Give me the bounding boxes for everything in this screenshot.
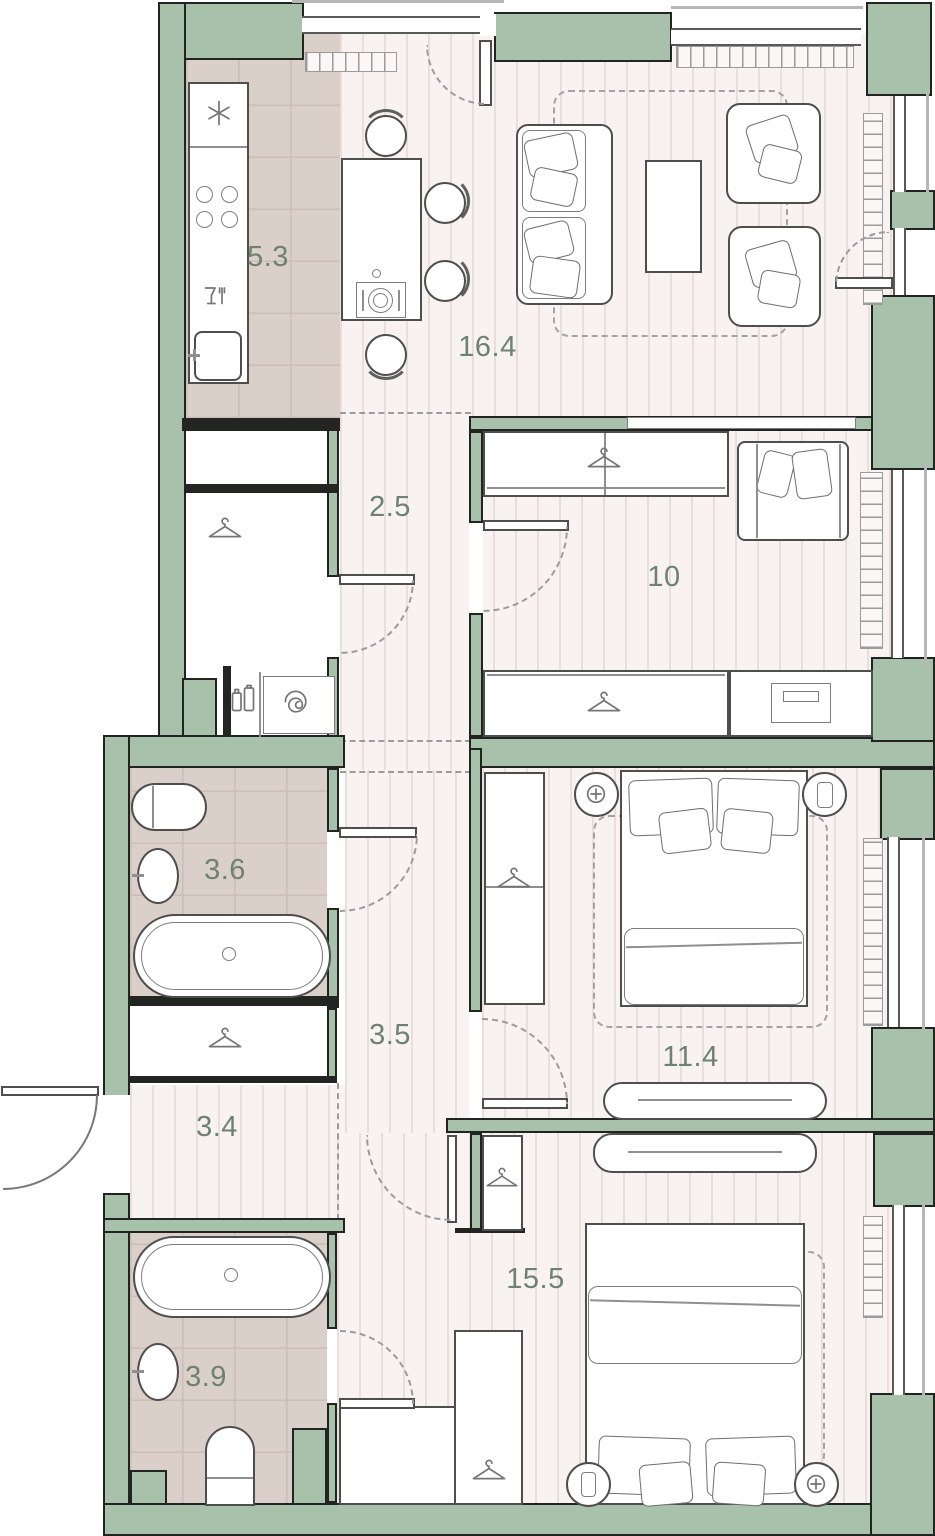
door-opening <box>327 832 339 908</box>
drawer-icon <box>771 683 831 723</box>
hanger-icon <box>470 1460 508 1482</box>
balcony-edge-line <box>292 0 504 3</box>
phone-icon <box>817 782 833 808</box>
fridge-divider <box>190 146 247 148</box>
partition-wall <box>186 484 339 493</box>
room-label-corridor: 3.5 <box>350 1018 430 1052</box>
radiator <box>305 52 397 72</box>
pillow <box>720 808 774 855</box>
stove-burner-icon <box>196 211 213 228</box>
pillow <box>791 448 833 501</box>
wall <box>494 12 672 62</box>
washer-drum-icon <box>281 687 317 723</box>
wall <box>469 431 483 523</box>
detergent-icon <box>230 682 256 714</box>
bathtub-drain <box>224 1268 238 1282</box>
coffee-table <box>645 160 702 273</box>
bench <box>593 1133 817 1173</box>
duct-shaft <box>182 678 217 737</box>
wall <box>871 657 935 742</box>
knife-icon <box>398 290 400 311</box>
window <box>671 28 861 46</box>
freezer-asterisk-icon <box>204 98 234 128</box>
wall <box>158 2 186 768</box>
entry-hall-floor <box>130 1085 345 1220</box>
lamp-plus-icon <box>585 783 607 805</box>
zone-divider <box>340 771 471 773</box>
balcony-door-opening <box>893 228 906 295</box>
room-label-bedroom-master: 15.5 <box>493 1262 578 1296</box>
wall <box>327 1008 337 1078</box>
kitchen-sink <box>194 331 242 381</box>
wall <box>469 748 482 1012</box>
balcony-edge-line <box>926 94 929 192</box>
zone-divider <box>340 740 471 742</box>
radiator <box>863 1216 883 1318</box>
wall <box>103 735 345 768</box>
bathtub-drain <box>222 947 236 961</box>
wall <box>873 1133 935 1207</box>
stove-burner-icon <box>221 186 238 203</box>
wardrobe-front-line <box>487 487 725 489</box>
balcony-edge-line <box>922 1201 925 1397</box>
balcony-door-opening <box>892 1317 905 1395</box>
blanket <box>624 928 804 1005</box>
cup-icon <box>372 269 381 278</box>
closet <box>339 1406 456 1505</box>
window <box>893 96 906 192</box>
door-opening <box>327 577 339 657</box>
wall <box>446 1118 935 1133</box>
bed-frame-line <box>756 444 758 538</box>
door-opening <box>469 523 483 613</box>
drawer-slot <box>783 691 819 702</box>
wall <box>103 735 130 1097</box>
bench-line <box>628 1151 782 1153</box>
dishwasher-icon <box>200 285 230 309</box>
stove-burner-icon <box>196 186 213 203</box>
dining-chair <box>424 182 466 224</box>
wall <box>871 1027 935 1120</box>
room-label-hallway: 2.5 <box>350 490 430 524</box>
dining-chair <box>365 334 407 376</box>
stove-burner-icon <box>221 211 238 228</box>
wall <box>890 190 935 230</box>
toilet <box>131 783 207 831</box>
radiator <box>860 472 883 649</box>
balcony-edge-line <box>671 6 863 9</box>
dining-chair <box>365 115 407 157</box>
wardrobe-front-line <box>487 674 725 676</box>
radiator <box>676 46 854 68</box>
wall <box>327 1403 337 1503</box>
pillow <box>658 807 713 855</box>
partition-wall <box>130 1076 337 1083</box>
entrance-door-arc <box>3 1095 98 1190</box>
wall <box>470 1133 482 1233</box>
room-label-kitchen: 5.3 <box>228 240 308 274</box>
wall <box>327 768 339 832</box>
fork-icon <box>362 290 364 311</box>
room-label-entry: 3.4 <box>177 1110 257 1144</box>
wall <box>103 1503 935 1536</box>
hanger-icon <box>495 868 533 890</box>
hanger-icon <box>585 692 623 714</box>
floor-plan: 5.3 16.4 2.5 10 3.6 3.5 3.4 11.4 3.9 15.… <box>0 0 935 1536</box>
toilet-seat-line <box>207 1477 253 1479</box>
wall <box>880 768 935 840</box>
balcony-edge-line <box>924 462 927 668</box>
wall <box>327 418 339 577</box>
door-opening <box>478 14 496 36</box>
window <box>302 16 480 34</box>
room-label-bathroom-second: 3.9 <box>166 1360 246 1394</box>
zone-divider <box>337 1083 339 1220</box>
hanger-icon <box>484 1168 520 1189</box>
console-shelf <box>627 417 856 429</box>
pillow <box>756 269 801 309</box>
toilet-tank-line <box>152 786 154 828</box>
wall <box>103 1218 345 1233</box>
bench <box>603 1082 827 1120</box>
toilet <box>205 1426 255 1506</box>
duct-shaft <box>130 1470 167 1505</box>
zone-divider <box>340 412 471 414</box>
partition-wall <box>182 418 340 431</box>
wall <box>103 1193 130 1536</box>
pillow <box>529 255 582 299</box>
room-label-bedroom-middle: 11.4 <box>648 1040 733 1074</box>
room-label-bedroom-small: 10 <box>624 560 704 594</box>
sink-tap <box>193 349 196 361</box>
room-label-living: 16.4 <box>445 330 530 364</box>
laundry-shelf-line <box>259 672 261 737</box>
radiator <box>863 838 883 1026</box>
blanket <box>588 1286 802 1364</box>
window <box>887 837 900 1027</box>
wall <box>866 2 932 96</box>
lamp-plus-icon <box>805 1473 827 1495</box>
hanger-icon <box>585 448 623 470</box>
wall <box>469 737 935 768</box>
door-opening <box>469 1012 482 1118</box>
wall <box>469 613 483 737</box>
hanger-icon <box>206 1028 244 1050</box>
basin-tap <box>132 874 144 877</box>
dining-chair <box>424 260 466 302</box>
pillow <box>638 1461 693 1507</box>
balcony-edge-line <box>922 833 925 1029</box>
duct-shaft <box>292 1428 327 1505</box>
bed-frame-line <box>839 444 841 538</box>
wall <box>871 295 935 470</box>
pantry-floor <box>186 431 327 486</box>
window <box>891 470 904 658</box>
door-opening <box>100 1095 130 1193</box>
hanger-icon <box>206 518 244 540</box>
window <box>892 1205 905 1317</box>
pillow <box>712 1461 767 1507</box>
wall <box>870 1393 935 1536</box>
basin-tap <box>132 1370 144 1373</box>
bench-line <box>638 1099 792 1101</box>
phone-icon <box>581 1472 596 1497</box>
door-opening <box>327 1329 337 1403</box>
room-label-bathroom-main: 3.6 <box>185 853 265 887</box>
plate-icon <box>373 293 388 308</box>
